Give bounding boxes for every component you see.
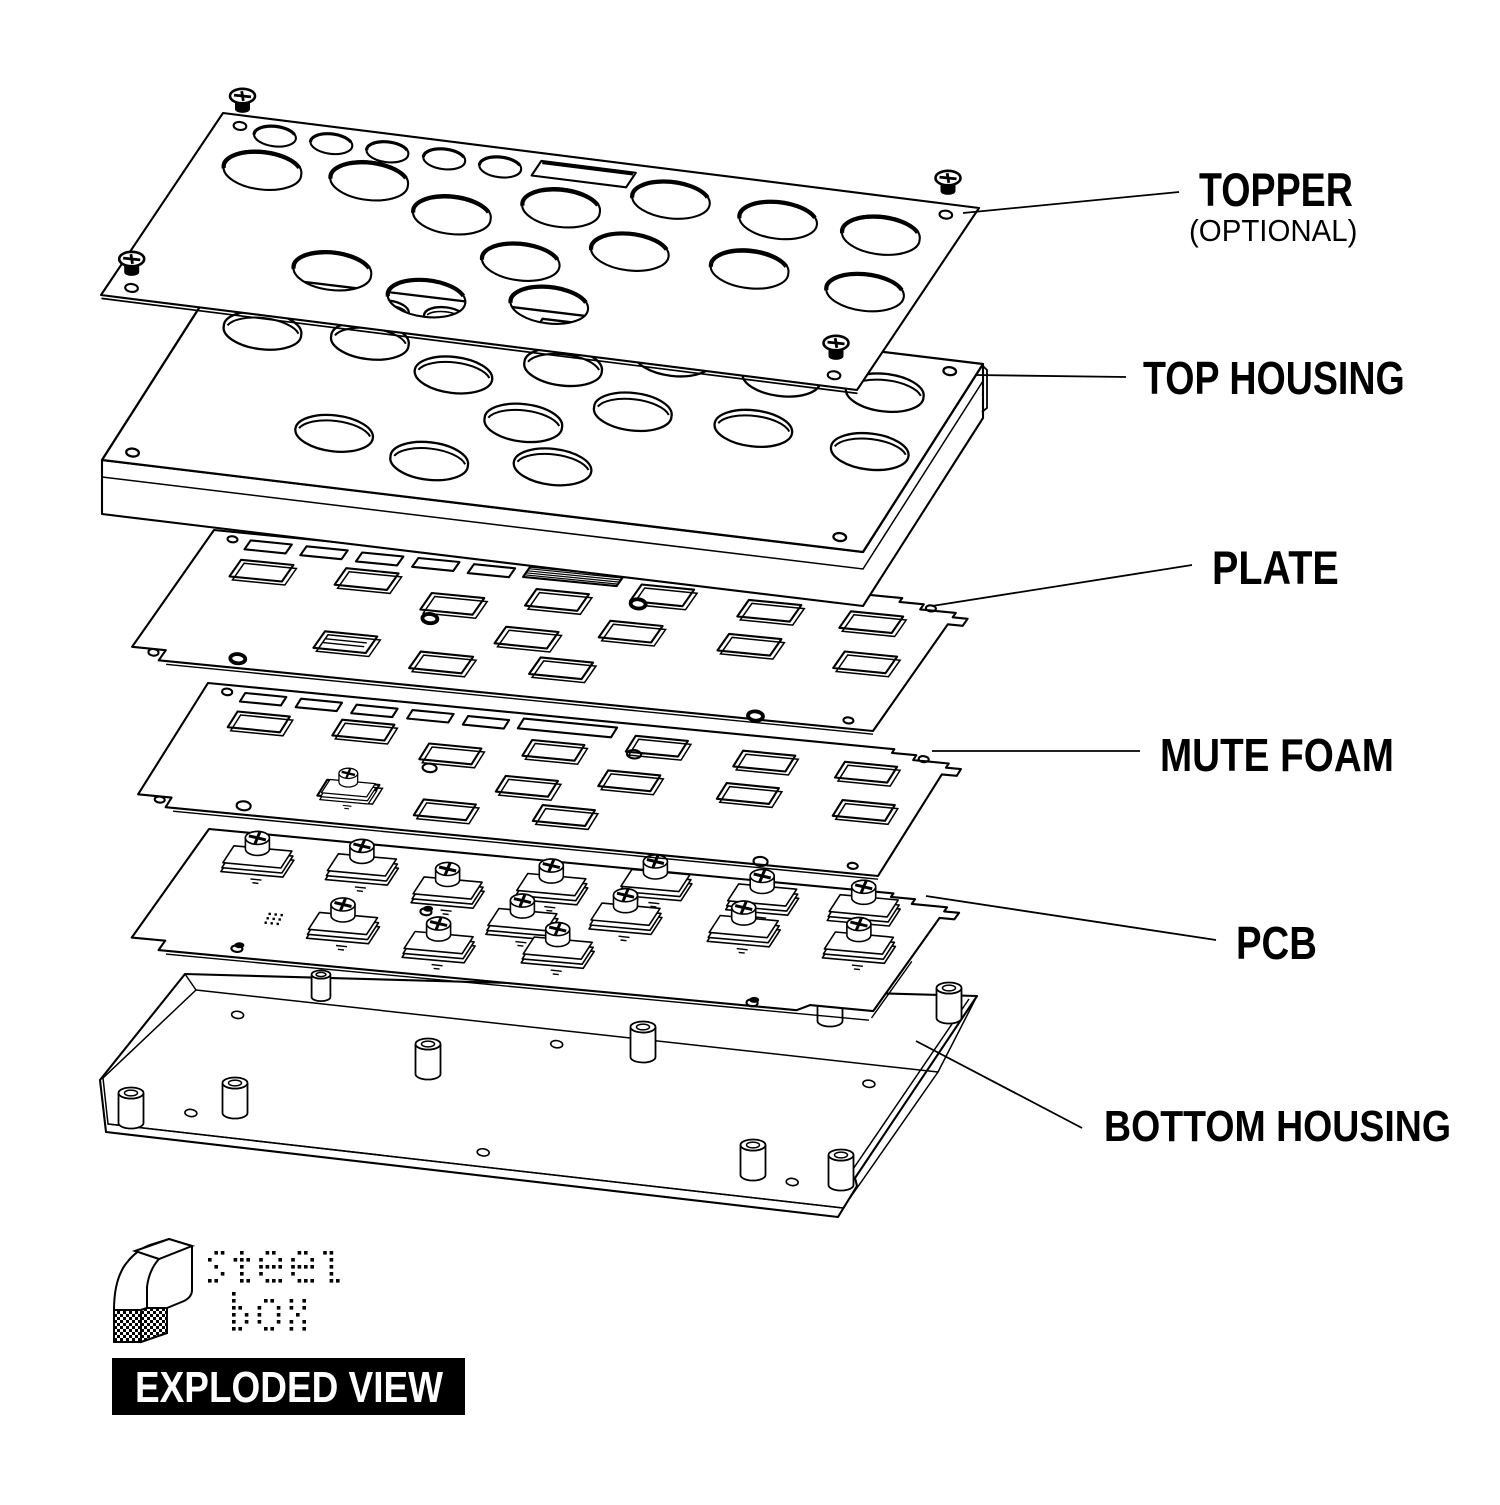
svg-text:BOTTOM HOUSING: BOTTOM HOUSING bbox=[1104, 1101, 1451, 1151]
svg-text:TOPPER: TOPPER bbox=[1199, 164, 1353, 217]
svg-text:PCB: PCB bbox=[1236, 918, 1317, 969]
svg-text:EXPLODED VIEW: EXPLODED VIEW bbox=[135, 1362, 444, 1412]
svg-text:(OPTIONAL): (OPTIONAL) bbox=[1189, 214, 1357, 248]
svg-text:PLATE: PLATE bbox=[1212, 543, 1339, 595]
svg-text:MUTE FOAM: MUTE FOAM bbox=[1160, 730, 1394, 781]
svg-text:TOP HOUSING: TOP HOUSING bbox=[1143, 352, 1405, 403]
